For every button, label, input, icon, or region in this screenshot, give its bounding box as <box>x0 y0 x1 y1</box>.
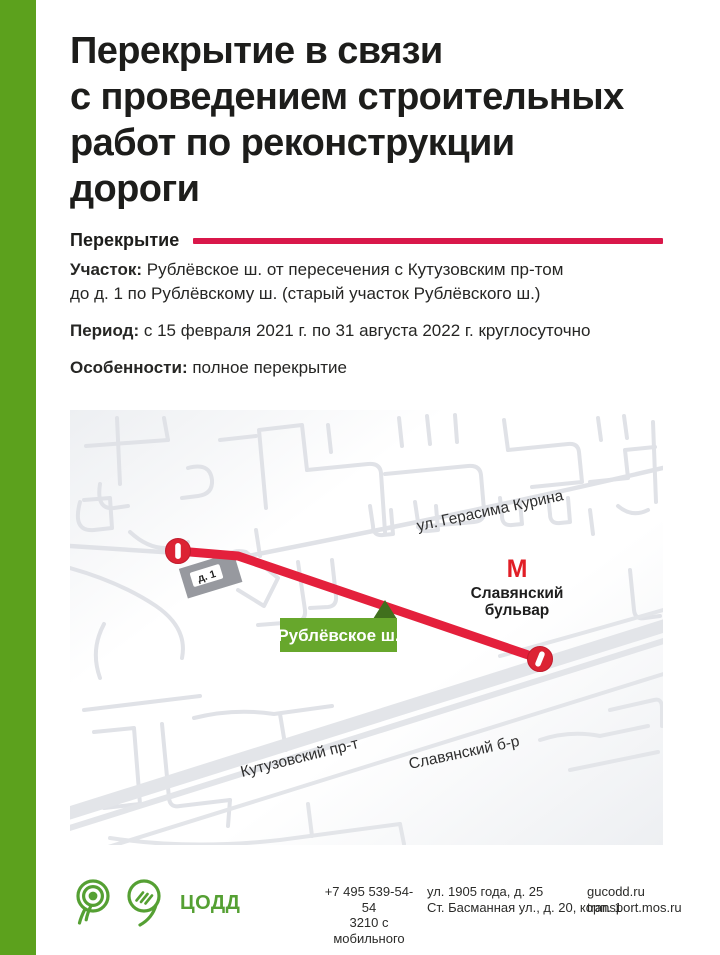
detail-area: Участок: Рублёвское ш. от пересечения с … <box>70 258 663 306</box>
footer-site-transport: transport.mos.ru <box>587 900 682 916</box>
footer-phone: +7 495 539-54-54 3210 с мобильного <box>318 884 420 946</box>
metro-icon: М <box>507 555 528 583</box>
logo-pin-rings-icon <box>78 881 108 923</box>
detail-period-text: с 15 февраля 2021 г. по 31 августа 2022 … <box>144 321 591 340</box>
footer-site-gucodd: gucodd.ru <box>587 884 682 900</box>
logo-pin-slashes-icon <box>129 881 159 925</box>
metro-name-line2: бульвар <box>485 602 550 619</box>
closure-map-svg: д. 1 Рублёвское ш. М <box>70 410 663 845</box>
org-name: ЦОДД <box>180 892 240 915</box>
detail-area-label: Участок: <box>70 260 142 279</box>
page-title-line: дороги <box>70 166 670 212</box>
section-label: Перекрытие <box>70 230 179 251</box>
detail-period: Период: с 15 февраля 2021 г. по 31 авгус… <box>70 319 663 343</box>
detail-features-label: Особенности: <box>70 358 188 377</box>
closed-road-label: Рублёвское ш. <box>277 626 399 645</box>
section-header: Перекрытие <box>70 230 663 251</box>
closure-point-end-icon <box>528 647 553 672</box>
detail-area-text: Рублёвское ш. от пересечения с Кутузовск… <box>147 260 564 279</box>
detail-period-label: Период: <box>70 321 139 340</box>
closure-point-start-icon <box>166 539 191 564</box>
accent-rule <box>193 238 663 244</box>
detail-features-text: полное перекрытие <box>192 358 347 377</box>
footer-phone-mobile: 3210 с мобильного <box>318 915 420 946</box>
page-title-line: работ по реконструкции <box>70 120 670 166</box>
footer-websites: gucodd.ru transport.mos.ru <box>587 884 682 915</box>
brand-green-stripe <box>0 0 36 955</box>
detail-features: Особенности: полное перекрытие <box>70 356 663 380</box>
page-title-line: Перекрытие в связи <box>70 28 670 74</box>
closure-map: д. 1 Рублёвское ш. М <box>70 410 663 845</box>
footer-phone-number: +7 495 539-54-54 <box>318 884 420 915</box>
metro-name-line1: Славянский <box>471 585 564 602</box>
page-title-line: с проведением строительных <box>70 74 670 120</box>
detail-area-text-line2: до д. 1 по Рублёвскому ш. (старый участо… <box>70 282 663 306</box>
codd-logo-icons <box>68 872 170 934</box>
codd-logo: ЦОДД <box>68 872 240 934</box>
closure-details: Участок: Рублёвское ш. от пересечения с … <box>70 258 663 393</box>
page-title: Перекрытие в связи с проведением строите… <box>70 28 670 212</box>
footer: ЦОДД +7 495 539-54-54 3210 с мобильного … <box>0 866 720 946</box>
closure-notice-poster: Перекрытие в связи с проведением строите… <box>0 0 720 955</box>
